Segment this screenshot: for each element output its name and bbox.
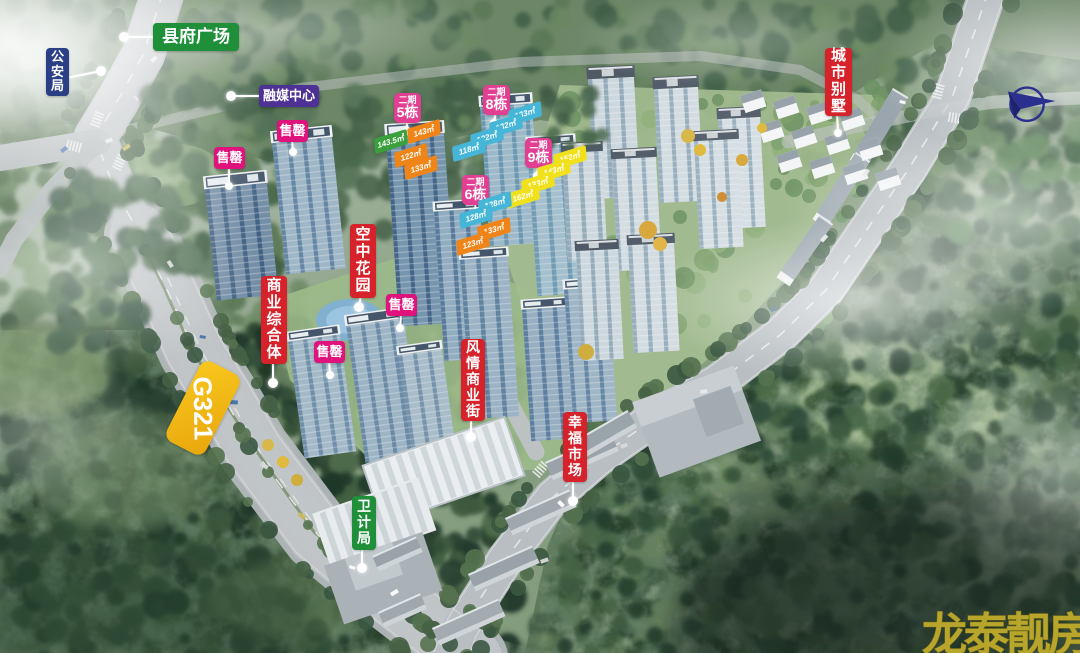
svg-text:龙泰靓房: 龙泰靓房	[922, 609, 1080, 653]
